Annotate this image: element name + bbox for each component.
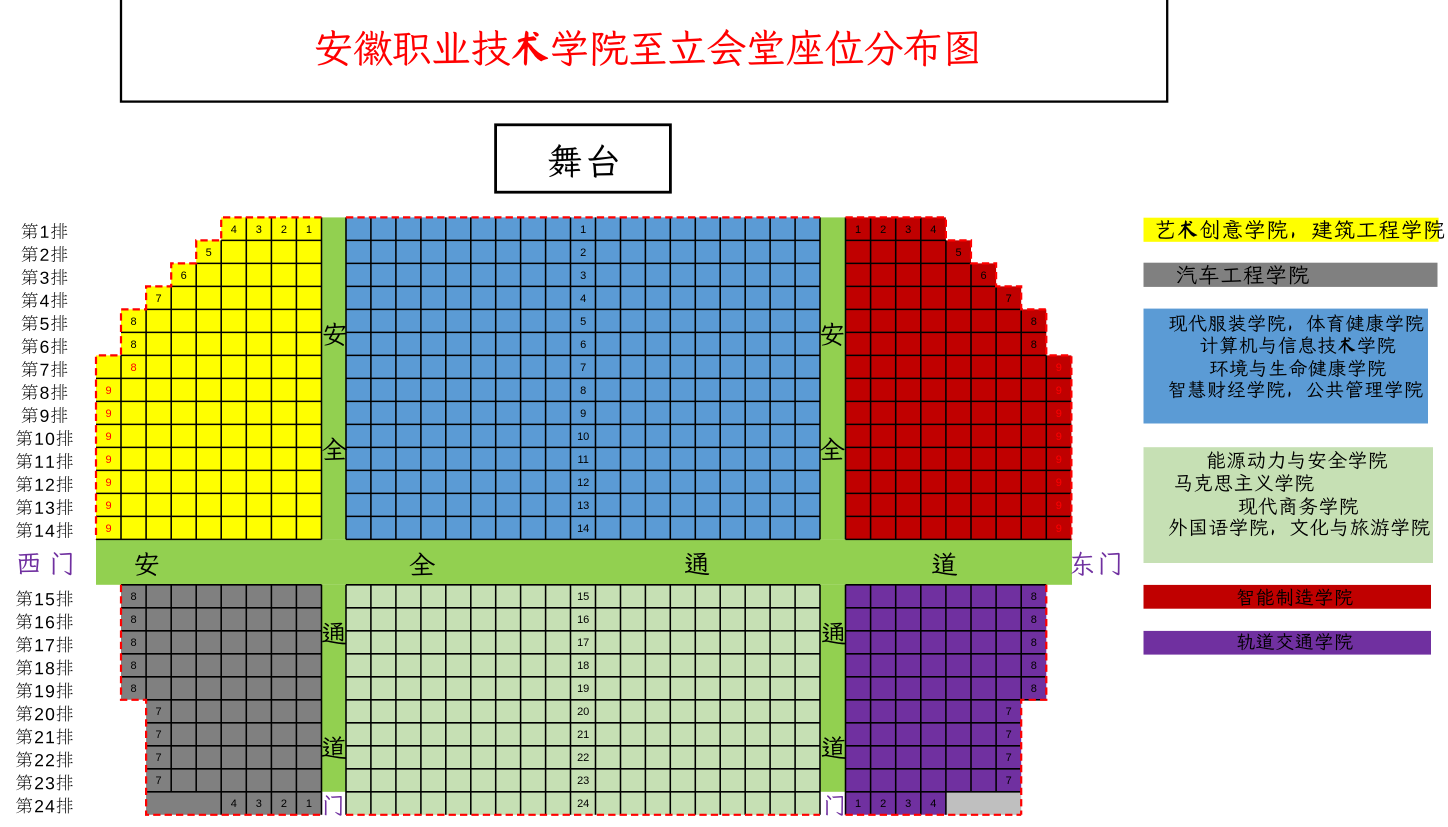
svg-text:7: 7: [1006, 752, 1012, 764]
svg-text:21: 21: [577, 729, 589, 741]
svg-text:9: 9: [105, 408, 111, 420]
svg-text:19: 19: [577, 683, 589, 695]
svg-text:9: 9: [105, 477, 111, 489]
svg-text:8: 8: [1031, 683, 1037, 695]
svg-text:7: 7: [580, 362, 586, 374]
svg-text:8: 8: [1031, 637, 1037, 649]
svg-text:9: 9: [1056, 431, 1062, 443]
svg-text:17: 17: [577, 637, 589, 649]
svg-text:3: 3: [256, 224, 262, 236]
svg-text:7: 7: [156, 752, 162, 764]
svg-text:8: 8: [1031, 339, 1037, 351]
svg-text:9: 9: [105, 454, 111, 466]
svg-text:2: 2: [281, 798, 287, 810]
svg-text:9: 9: [105, 385, 111, 397]
svg-text:7: 7: [156, 293, 162, 305]
svg-text:8: 8: [131, 683, 137, 695]
svg-text:9: 9: [105, 523, 111, 535]
svg-text:4: 4: [231, 798, 237, 810]
svg-text:1: 1: [306, 798, 312, 810]
svg-text:3: 3: [905, 798, 911, 810]
svg-text:12: 12: [577, 477, 589, 489]
svg-text:4: 4: [580, 293, 586, 305]
svg-text:7: 7: [1006, 293, 1012, 305]
svg-text:3: 3: [905, 224, 911, 236]
svg-text:8: 8: [131, 637, 137, 649]
svg-text:7: 7: [156, 729, 162, 741]
svg-text:9: 9: [580, 408, 586, 420]
svg-text:18: 18: [577, 660, 589, 672]
svg-text:14: 14: [577, 523, 589, 535]
svg-text:1: 1: [855, 798, 861, 810]
svg-text:7: 7: [1006, 729, 1012, 741]
svg-text:8: 8: [580, 385, 586, 397]
svg-text:9: 9: [105, 500, 111, 512]
svg-text:1: 1: [306, 224, 312, 236]
svg-text:9: 9: [1056, 500, 1062, 512]
svg-text:7: 7: [1006, 775, 1012, 787]
svg-text:7: 7: [1006, 706, 1012, 718]
svg-text:10: 10: [577, 431, 589, 443]
svg-text:1: 1: [855, 224, 861, 236]
svg-text:6: 6: [181, 270, 187, 282]
svg-text:8: 8: [131, 591, 137, 603]
svg-text:9: 9: [1056, 362, 1062, 374]
svg-text:8: 8: [1031, 660, 1037, 672]
svg-text:8: 8: [1031, 316, 1037, 328]
svg-text:20: 20: [577, 706, 589, 718]
svg-text:5: 5: [955, 247, 961, 259]
svg-text:8: 8: [131, 614, 137, 626]
svg-text:5: 5: [580, 316, 586, 328]
svg-text:9: 9: [1056, 454, 1062, 466]
svg-text:3: 3: [580, 270, 586, 282]
svg-text:4: 4: [231, 224, 237, 236]
svg-text:9: 9: [1056, 477, 1062, 489]
svg-text:2: 2: [880, 798, 886, 810]
svg-text:7: 7: [156, 706, 162, 718]
svg-text:8: 8: [131, 316, 137, 328]
svg-text:9: 9: [105, 431, 111, 443]
svg-text:4: 4: [930, 798, 936, 810]
svg-text:9: 9: [1056, 523, 1062, 535]
svg-text:24: 24: [577, 798, 589, 810]
svg-text:22: 22: [577, 752, 589, 764]
svg-text:6: 6: [980, 270, 986, 282]
svg-text:23: 23: [577, 775, 589, 787]
svg-text:8: 8: [131, 362, 137, 374]
svg-text:13: 13: [577, 500, 589, 512]
svg-text:16: 16: [577, 614, 589, 626]
svg-text:7: 7: [156, 775, 162, 787]
svg-text:8: 8: [131, 660, 137, 672]
svg-text:8: 8: [1031, 614, 1037, 626]
svg-text:3: 3: [256, 798, 262, 810]
svg-text:5: 5: [206, 247, 212, 259]
svg-text:8: 8: [1031, 591, 1037, 603]
svg-text:8: 8: [131, 339, 137, 351]
svg-text:9: 9: [1056, 385, 1062, 397]
svg-text:2: 2: [880, 224, 886, 236]
svg-text:15: 15: [577, 591, 589, 603]
svg-text:11: 11: [577, 454, 588, 466]
svg-text:4: 4: [930, 224, 936, 236]
svg-text:6: 6: [580, 339, 586, 351]
svg-text:2: 2: [580, 247, 586, 259]
svg-text:9: 9: [1056, 408, 1062, 420]
svg-text:2: 2: [281, 224, 287, 236]
svg-text:1: 1: [580, 224, 586, 236]
